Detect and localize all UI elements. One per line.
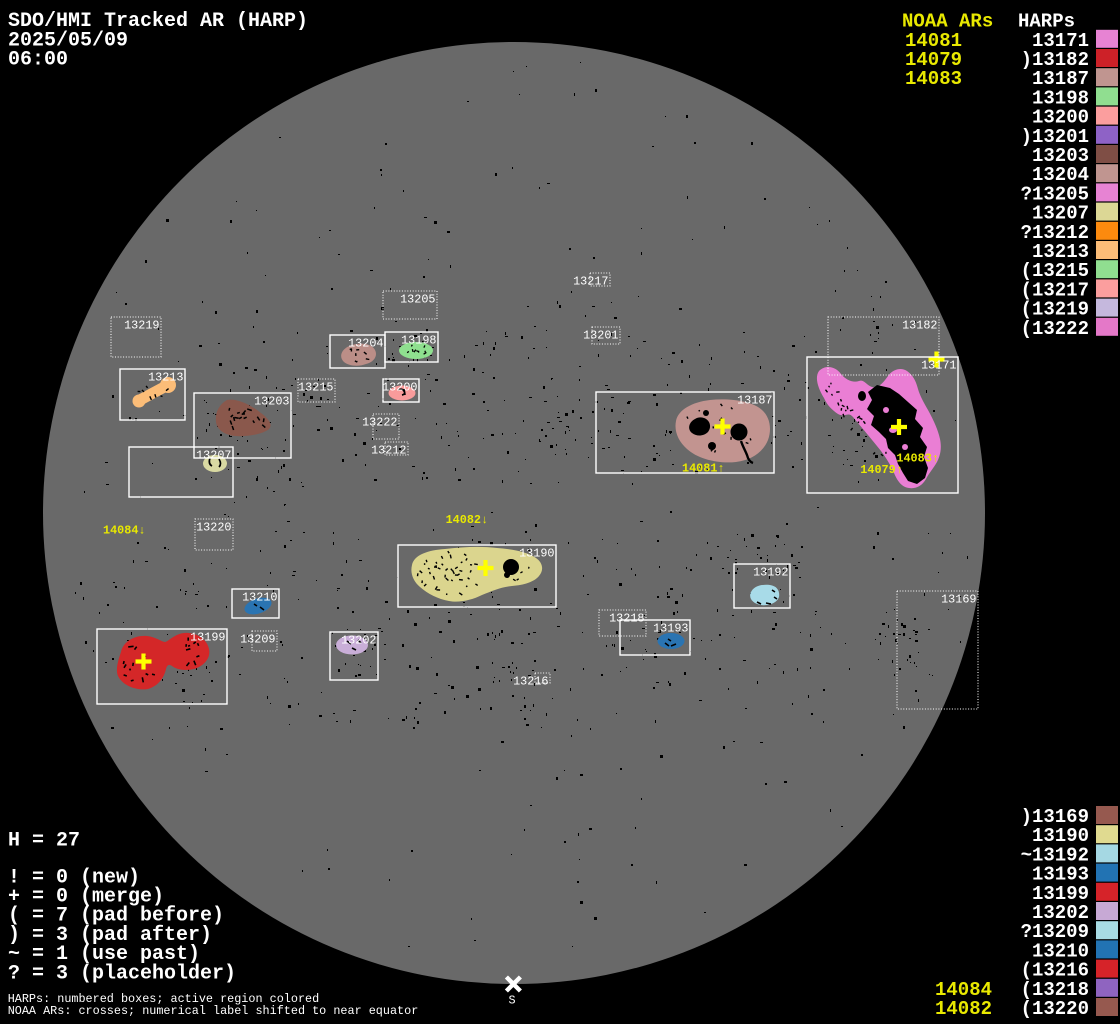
svg-text:H = 27: H = 27 — [8, 830, 80, 853]
svg-text:(13220: (13220 — [1021, 998, 1089, 1020]
svg-text:? = 3 (placeholder): ? = 3 (placeholder) — [8, 962, 236, 985]
svg-text:13217: 13217 — [573, 274, 608, 288]
svg-text:13218: 13218 — [609, 611, 644, 625]
svg-text:13171: 13171 — [921, 358, 956, 372]
svg-text:(13222: (13222 — [1021, 318, 1089, 340]
svg-text:13212: 13212 — [371, 443, 406, 457]
svg-text:S: S — [508, 994, 515, 1008]
svg-text:13215: 13215 — [298, 380, 333, 394]
svg-text:13219: 13219 — [124, 318, 159, 332]
svg-text:13203: 13203 — [254, 394, 289, 408]
svg-text:13213: 13213 — [148, 370, 183, 384]
svg-text:13200: 13200 — [382, 380, 417, 394]
svg-text:14079↑: 14079↑ — [860, 463, 902, 477]
svg-text:13193: 13193 — [653, 621, 688, 635]
svg-text:14082↓: 14082↓ — [446, 513, 488, 527]
svg-text:14084↓: 14084↓ — [103, 524, 145, 538]
svg-text:13199: 13199 — [190, 630, 225, 644]
svg-text:13169: 13169 — [941, 592, 976, 606]
svg-text:13204: 13204 — [348, 336, 383, 350]
svg-text:13201: 13201 — [583, 328, 618, 342]
svg-text:13182: 13182 — [902, 318, 937, 332]
svg-text:13210: 13210 — [242, 590, 277, 604]
svg-text:13187: 13187 — [737, 393, 772, 407]
svg-text:13198: 13198 — [401, 333, 436, 347]
svg-text:14083: 14083 — [905, 68, 962, 90]
svg-text:NOAA ARs: crosses; numerical l: NOAA ARs: crosses; numerical label shift… — [8, 1004, 419, 1018]
svg-text:13192: 13192 — [753, 565, 788, 579]
svg-text:06:00: 06:00 — [8, 49, 68, 72]
svg-text:13205: 13205 — [400, 292, 435, 306]
svg-text:13222: 13222 — [362, 415, 397, 429]
svg-text:13202: 13202 — [341, 633, 376, 647]
svg-text:13207: 13207 — [196, 448, 231, 462]
svg-text:13220: 13220 — [196, 520, 231, 534]
svg-text:13190: 13190 — [519, 546, 554, 560]
svg-text:13209: 13209 — [240, 632, 275, 646]
svg-text:14082: 14082 — [935, 998, 992, 1020]
svg-text:13216: 13216 — [513, 674, 548, 688]
